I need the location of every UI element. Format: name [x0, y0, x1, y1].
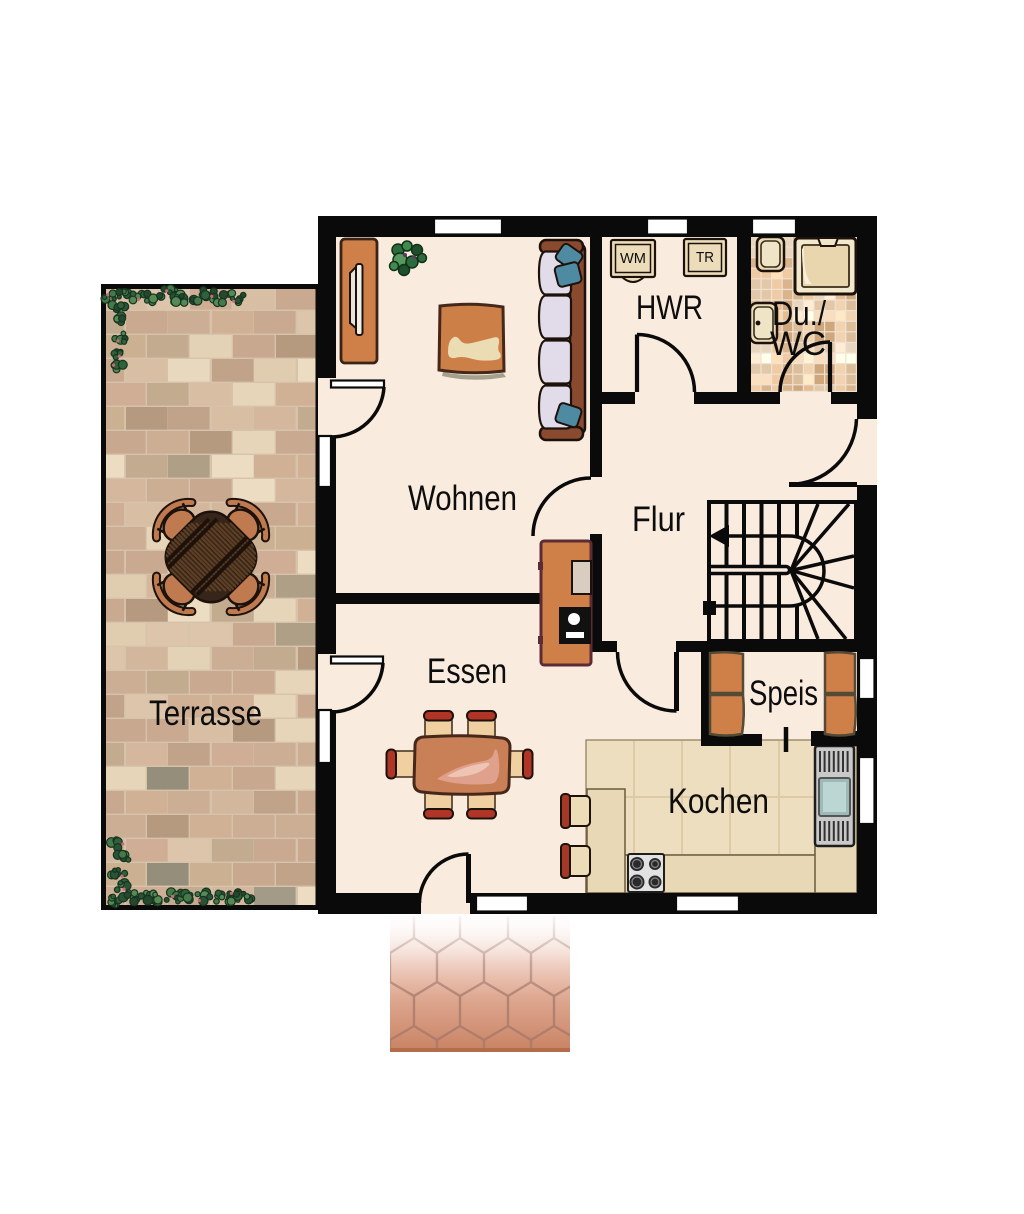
svg-text:Wohnen: Wohnen [408, 479, 517, 518]
svg-text:HWR: HWR [636, 289, 703, 327]
svg-text:WC: WC [770, 325, 826, 363]
svg-text:Flur: Flur [632, 500, 685, 539]
svg-text:TR: TR [696, 249, 714, 266]
svg-text:Terrasse: Terrasse [149, 694, 262, 733]
svg-text:WM: WM [620, 250, 646, 267]
svg-text:Kochen: Kochen [668, 782, 769, 821]
svg-text:Speis: Speis [749, 674, 818, 713]
svg-text:Essen: Essen [427, 652, 507, 691]
